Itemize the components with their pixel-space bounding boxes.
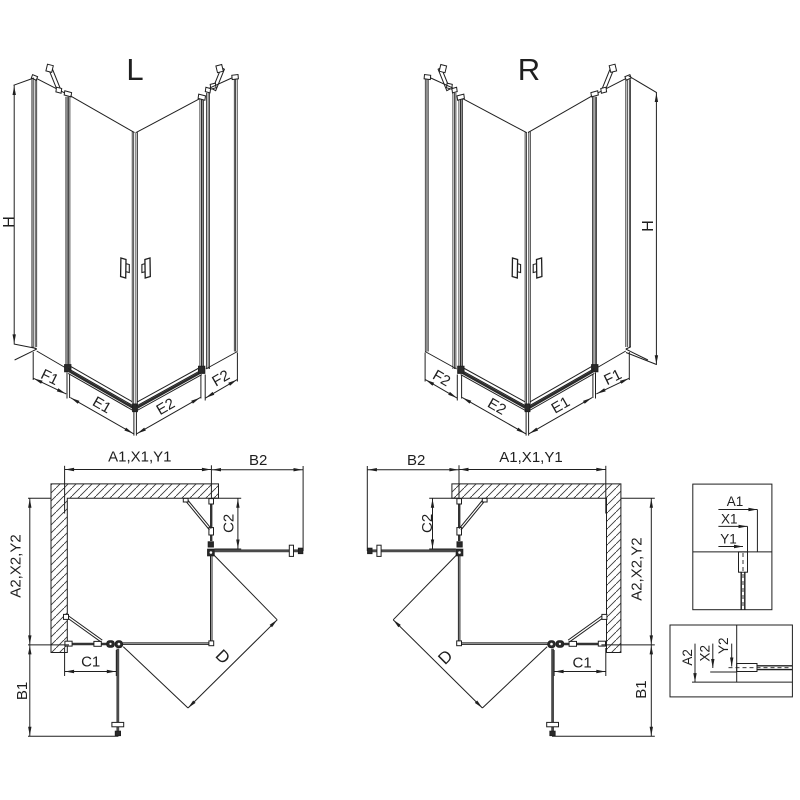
svg-text:C2: C2 (220, 514, 237, 533)
svg-text:B1: B1 (633, 680, 650, 698)
svg-text:Y1: Y1 (720, 532, 737, 547)
svg-text:C1: C1 (81, 653, 100, 670)
svg-text:A1,X1,Y1: A1,X1,Y1 (499, 449, 562, 466)
svg-text:X2: X2 (698, 645, 713, 662)
svg-text:H: H (1, 216, 18, 228)
svg-text:A2,X2,Y2: A2,X2,Y2 (7, 534, 24, 597)
svg-text:X1: X1 (721, 511, 738, 526)
svg-text:Y2: Y2 (716, 637, 731, 654)
svg-text:R: R (518, 52, 540, 87)
svg-text:A1,X1,Y1: A1,X1,Y1 (108, 448, 171, 465)
svg-text:C2: C2 (419, 514, 436, 533)
svg-text:A2,X2,Y2: A2,X2,Y2 (628, 537, 645, 600)
svg-text:B2: B2 (407, 452, 425, 469)
svg-text:B1: B1 (14, 682, 31, 700)
svg-text:B2: B2 (249, 452, 267, 469)
svg-text:C1: C1 (573, 654, 592, 671)
svg-text:H: H (640, 220, 657, 232)
svg-text:A2: A2 (680, 649, 695, 666)
svg-text:L: L (126, 52, 143, 87)
svg-text:A1: A1 (727, 494, 744, 509)
